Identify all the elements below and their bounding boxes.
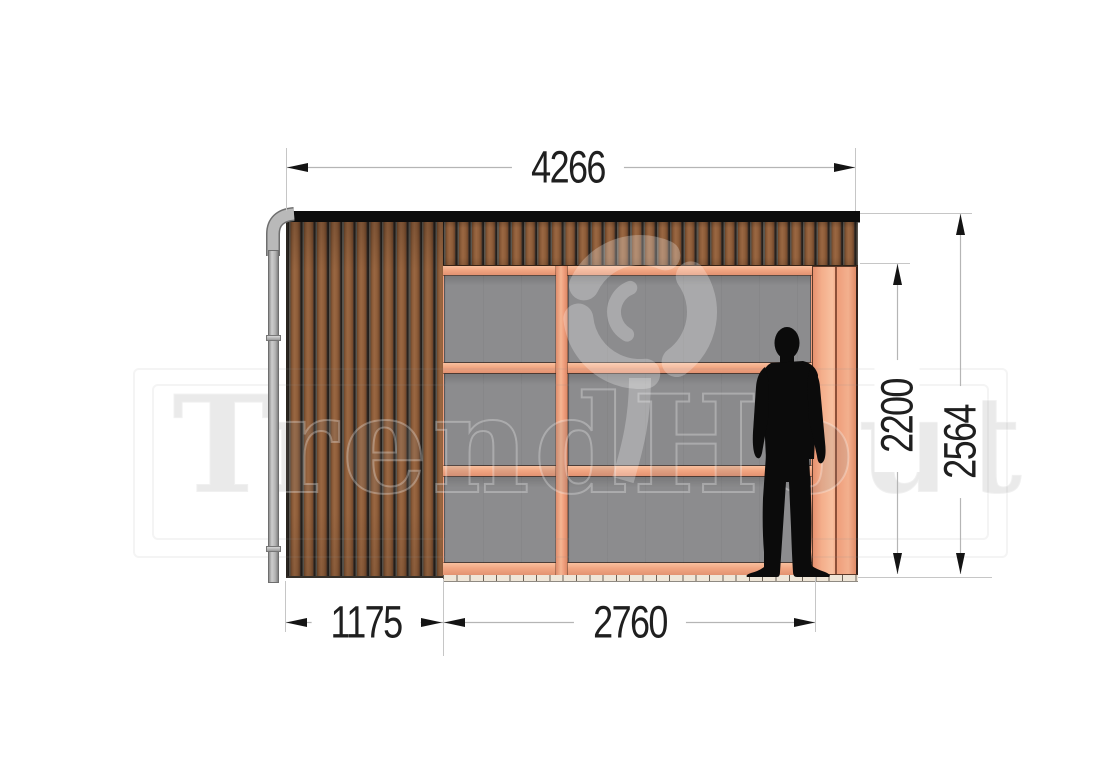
dim-label-left-section-width: 1175 — [312, 600, 421, 645]
dim-label-opening-height: 2200 — [875, 360, 920, 472]
dim-value: 1175 — [330, 600, 401, 645]
dim-value: 4266 — [531, 145, 605, 190]
dim-label-total-width: 4266 — [512, 145, 624, 190]
dim-label-total-height: 2564 — [938, 386, 983, 498]
dim-value: 2200 — [875, 379, 920, 453]
elevation-drawing: TrendHout — [0, 0, 1120, 770]
dim-value: 2760 — [593, 600, 667, 645]
dim-label-opening-width: 2760 — [574, 600, 686, 645]
dim-value: 2564 — [938, 405, 983, 479]
